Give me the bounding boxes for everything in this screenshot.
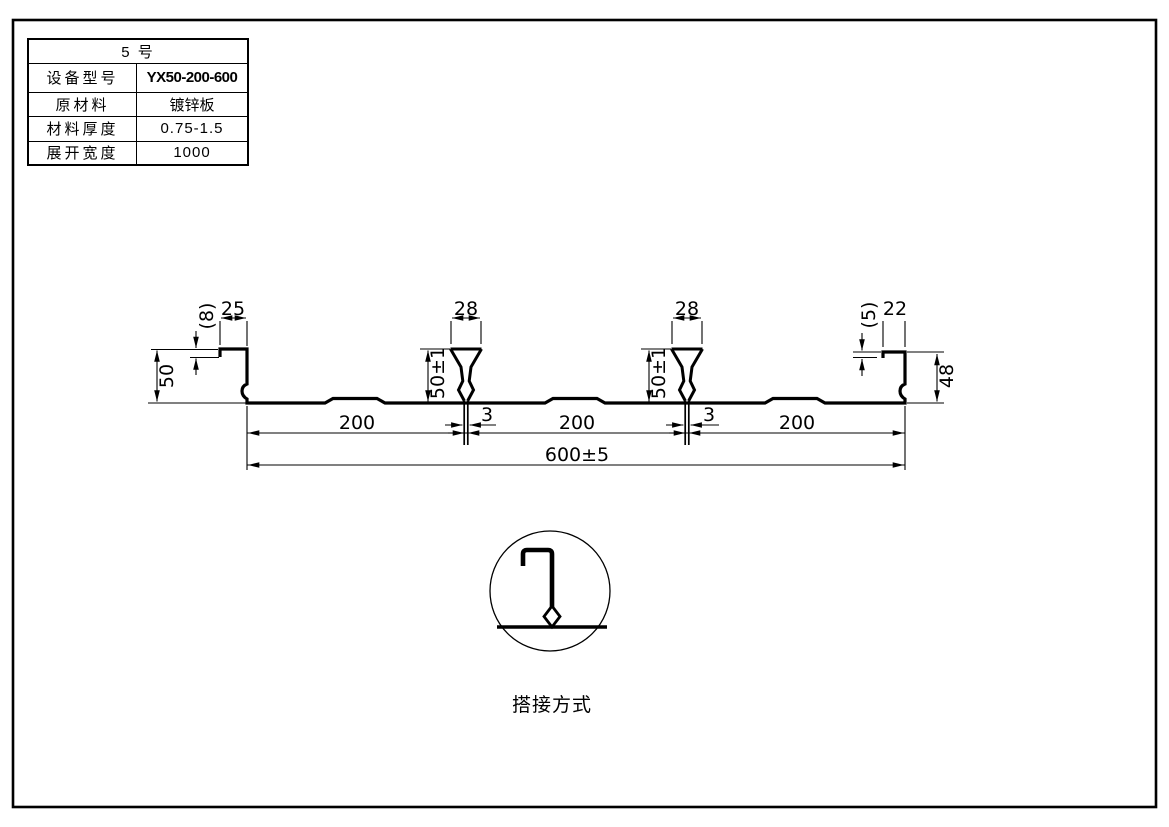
dimension-labels: 50 (8) 25 28 50±1 3 28 50±1 3 200 200 20… bbox=[156, 298, 958, 466]
dim-left-flange-label: 25 bbox=[221, 298, 245, 320]
row-model-label: 设备型号 bbox=[28, 63, 137, 92]
table-row: 设备型号 YX50-200-600 bbox=[28, 63, 248, 92]
detail-seam-diamond bbox=[544, 606, 560, 627]
table-header: 5 号 bbox=[28, 39, 248, 63]
drawing-sheet: 50 (8) 25 28 50±1 3 28 50±1 3 200 200 20… bbox=[0, 0, 1169, 827]
ext-22 bbox=[883, 321, 905, 347]
row-thickness-label: 材料厚度 bbox=[28, 116, 137, 141]
detail-hook-profile bbox=[523, 550, 552, 607]
dim-left-lip-label: (8) bbox=[196, 303, 218, 330]
dim-rib1-top-label: 28 bbox=[454, 298, 478, 320]
dim-pitch2-label: 200 bbox=[559, 412, 595, 434]
ext-28-rib2 bbox=[672, 321, 702, 344]
dim-rib2-height-label: 50±1 bbox=[648, 347, 670, 399]
dim-overall-label: 600±5 bbox=[545, 444, 609, 466]
lap-joint-detail: 搭接方式 bbox=[490, 531, 610, 716]
ext-28-rib1 bbox=[451, 321, 481, 344]
dim-rib2-top-label: 28 bbox=[675, 298, 699, 320]
spec-table: 5 号 设备型号 YX50-200-600 原材料 镀锌板 材料厚度 0.75-… bbox=[27, 38, 249, 166]
dim-rib2-gap-label: 3 bbox=[703, 404, 715, 426]
rib2-seam-lines bbox=[685, 401, 689, 445]
rib1-outline-path bbox=[451, 349, 482, 401]
row-model-value: YX50-200-600 bbox=[137, 63, 249, 92]
rib1-seam-lines bbox=[464, 401, 468, 445]
dim-right-flange-label: 22 bbox=[883, 298, 907, 320]
dim-pitch3-label: 200 bbox=[779, 412, 815, 434]
dim-right-height-label: 48 bbox=[936, 364, 958, 388]
table-row: 展开宽度 1000 bbox=[28, 141, 248, 165]
table-row: 原材料 镀锌板 bbox=[28, 92, 248, 116]
table-header-row: 5 号 bbox=[28, 39, 248, 63]
row-thickness-value: 0.75-1.5 bbox=[137, 116, 249, 141]
row-material-value: 镀锌板 bbox=[137, 92, 249, 116]
lap-detail-caption: 搭接方式 bbox=[512, 694, 592, 716]
dim-pitch1-label: 200 bbox=[339, 412, 375, 434]
sheet-outline-path bbox=[220, 349, 905, 403]
rib2-outline-path bbox=[672, 349, 703, 401]
ext-25 bbox=[220, 321, 247, 346]
row-width-value: 1000 bbox=[137, 141, 249, 165]
dim-rib1-height-label: 50±1 bbox=[427, 347, 449, 399]
ext-right-lip bbox=[853, 352, 881, 358]
table-row: 材料厚度 0.75-1.5 bbox=[28, 116, 248, 141]
dim-rib1-gap-label: 3 bbox=[481, 404, 493, 426]
row-width-label: 展开宽度 bbox=[28, 141, 137, 165]
row-material-label: 原材料 bbox=[28, 92, 137, 116]
dim-right-lip-label: (5) bbox=[858, 302, 880, 329]
dim-left-height-label: 50 bbox=[156, 364, 178, 388]
